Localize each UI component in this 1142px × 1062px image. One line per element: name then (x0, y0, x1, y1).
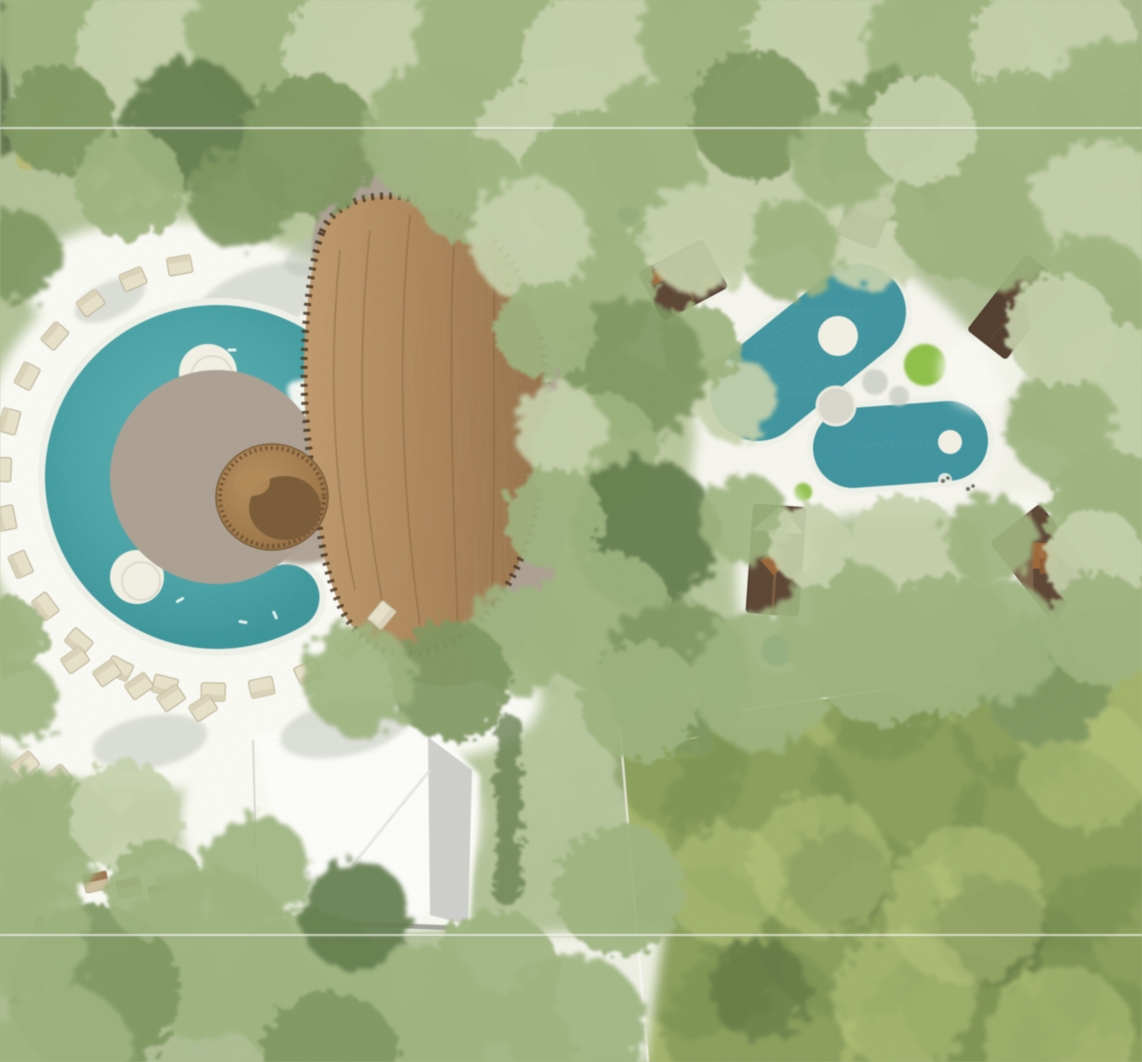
site-plan-svg (0, 0, 1142, 1062)
canopy-grain (0, 0, 1142, 1062)
resort-site-plan-screenshot (0, 0, 1142, 1062)
